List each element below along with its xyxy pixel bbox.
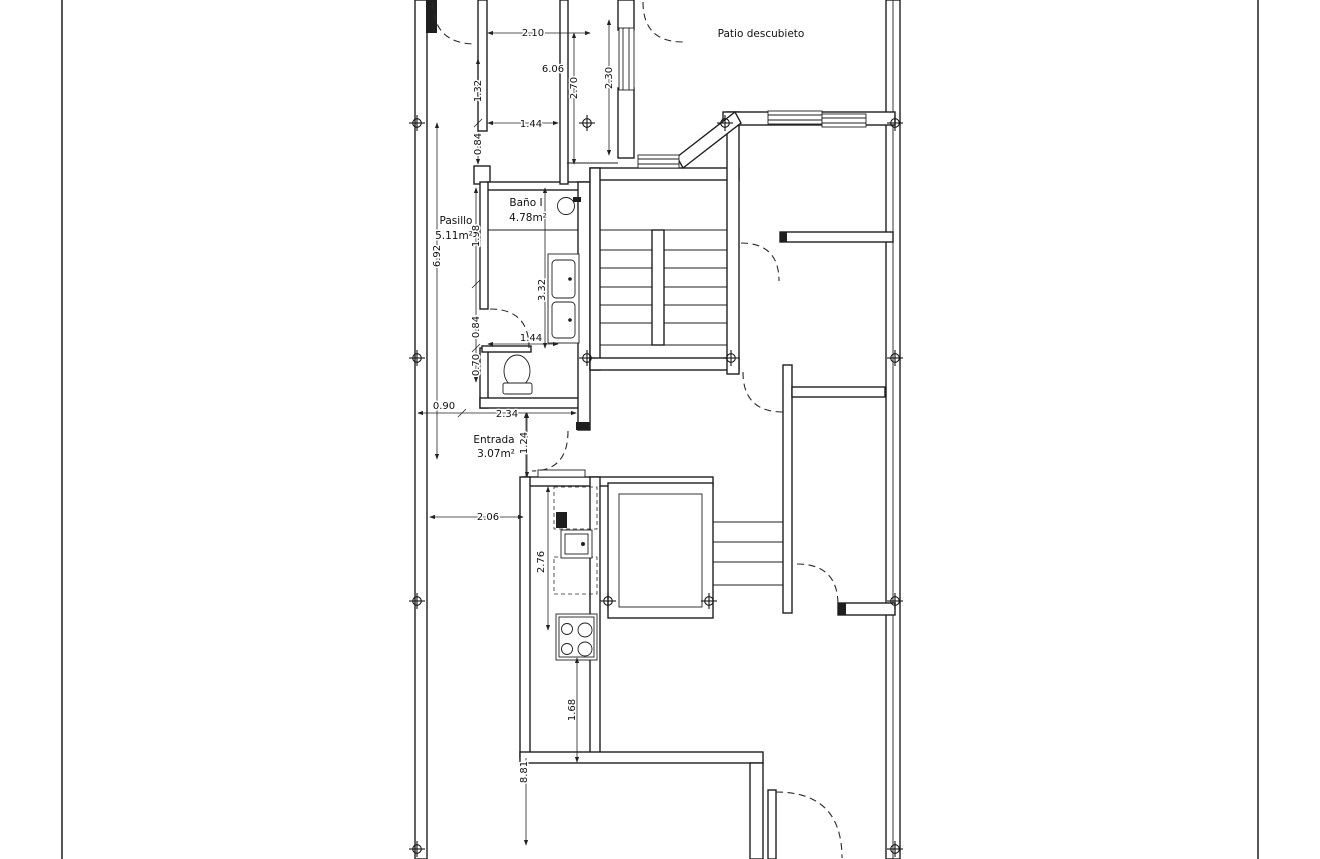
dim-1-24: 1.24 <box>519 432 530 454</box>
dim-2-70: 2.70 <box>569 77 580 99</box>
windows <box>619 28 866 168</box>
wall <box>560 0 568 184</box>
wall-stair-bottom <box>590 358 739 370</box>
wall-kitchen-left <box>520 477 530 758</box>
dim-2-30: 2.30 <box>604 67 615 89</box>
wall-bath-right <box>578 182 590 430</box>
door-arc <box>743 372 783 412</box>
door-threshold <box>538 470 585 477</box>
wall-stub <box>426 0 437 33</box>
dim-0-70: 0.70 <box>471 354 482 376</box>
window-icon <box>638 155 679 168</box>
door-arcs <box>433 2 842 858</box>
dim-2-76: 2.76 <box>536 551 547 573</box>
wall <box>478 0 487 131</box>
toilet-icon <box>503 355 532 394</box>
walls <box>415 0 900 859</box>
door-arc <box>643 2 683 42</box>
wall <box>520 752 763 763</box>
property-boundary <box>62 0 1258 859</box>
wall-sink-icon <box>558 198 575 215</box>
room-area-6-06: 6.06 <box>542 64 564 75</box>
wall-door-jamb <box>768 790 776 859</box>
floor-plan-drawing: 2.10 6.06 2.70 2.30 1.32 0.84 1.44 1.98 … <box>0 0 1320 859</box>
oven-icon <box>561 530 592 558</box>
dim-2-34: 2.34 <box>496 409 518 420</box>
dim-0-84-lower: 0.84 <box>471 316 482 338</box>
wall <box>482 346 531 352</box>
door-jamb <box>576 422 590 430</box>
wall <box>480 398 581 408</box>
dim-6-92: 6.92 <box>432 245 443 267</box>
wall-bath-top <box>487 182 590 190</box>
door-jamb <box>780 232 787 242</box>
room-area-entrada: 3.07m² <box>477 448 515 460</box>
wall-room-divider <box>780 232 893 242</box>
dim-2-06: 2.06 <box>477 512 499 523</box>
room-label-entrada: Entrada <box>473 434 514 446</box>
room-area-bano: 4.78m² <box>509 212 547 224</box>
door-arc <box>776 792 842 858</box>
floor-plan-canvas: 2.10 6.06 2.70 2.30 1.32 0.84 1.44 1.98 … <box>0 0 1320 859</box>
window-icon <box>768 111 822 124</box>
stair-stringer <box>652 230 664 345</box>
door-arc <box>532 431 568 471</box>
wall-room-divider <box>838 603 895 615</box>
wall <box>618 0 634 30</box>
dim-2-10: 2.10 <box>522 28 544 39</box>
crosshair-marker <box>579 115 595 131</box>
elevator-shaft <box>608 483 713 618</box>
dim-1-68: 1.68 <box>567 699 578 721</box>
window-icon <box>822 114 866 127</box>
door-arc <box>433 2 476 44</box>
door-arc <box>797 564 838 605</box>
wall-room-divider <box>792 387 885 397</box>
room-area-pasillo: 5.11m² <box>435 230 473 242</box>
room-label-pasillo: Pasillo <box>440 215 473 227</box>
dim-8-81: 8.81 <box>519 761 530 783</box>
door-arc <box>741 243 779 281</box>
dim-1-44-upper: 1.44 <box>520 119 542 130</box>
dim-1-44-lower: 1.44 <box>520 333 542 344</box>
room-label-patio: Patio descubieto <box>718 28 805 40</box>
wall <box>618 88 634 158</box>
window-icon <box>619 28 634 90</box>
dim-0-90: 0.90 <box>433 401 455 412</box>
dim-3-32: 3.32 <box>537 279 548 301</box>
dimension-lines <box>418 20 609 845</box>
room-label-bano: Baño I <box>509 197 542 209</box>
dim-1-32: 1.32 <box>473 80 484 102</box>
wall-central <box>783 365 792 613</box>
dim-0-84-upper: 0.84 <box>473 133 484 155</box>
kitchen-sink-icon <box>556 512 567 528</box>
wall-rooms-left <box>727 112 739 374</box>
wall <box>750 763 763 859</box>
wall-stair-top <box>590 168 739 180</box>
stove-icon <box>556 614 597 660</box>
vanity-icon <box>548 254 579 343</box>
door-jamb <box>838 603 846 615</box>
wall-stair-left <box>590 168 600 370</box>
